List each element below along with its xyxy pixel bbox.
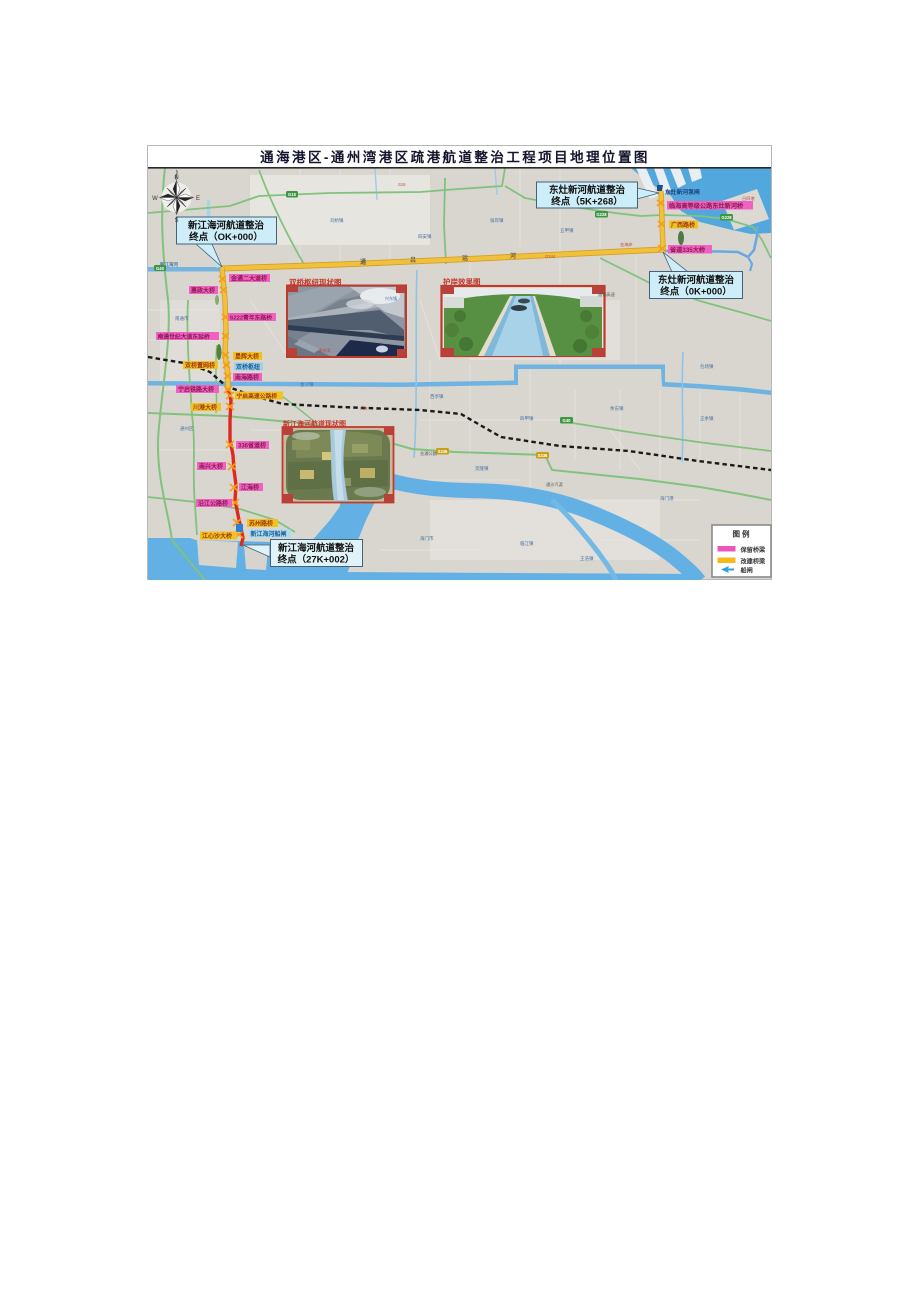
svg-text:S336: S336 bbox=[538, 453, 548, 458]
svg-text:终点（0K+000）: 终点（0K+000） bbox=[659, 286, 732, 298]
svg-text:吕: 吕 bbox=[410, 256, 416, 264]
svg-text:船闸: 船闸 bbox=[741, 567, 753, 575]
svg-text:东灶新河航道整治: 东灶新河航道整治 bbox=[549, 184, 626, 196]
svg-text:运: 运 bbox=[462, 254, 468, 262]
svg-text:南通市: 南通市 bbox=[175, 315, 189, 322]
svg-text:保留桥梁: 保留桥梁 bbox=[740, 546, 767, 554]
svg-text:王浩镇: 王浩镇 bbox=[580, 555, 594, 562]
svg-text:新江海河船闸: 新江海河船闸 bbox=[251, 530, 287, 538]
svg-text:河: 河 bbox=[510, 252, 516, 260]
svg-text:改建桥梁: 改建桥梁 bbox=[741, 557, 767, 565]
svg-text:S336: S336 bbox=[438, 449, 448, 454]
svg-text:W: W bbox=[152, 196, 158, 202]
svg-text:余东镇: 余东镇 bbox=[610, 405, 624, 412]
svg-text:G40: G40 bbox=[563, 418, 572, 423]
svg-text:广西路桥: 广西路桥 bbox=[671, 221, 696, 229]
svg-text:终点（27K+002）: 终点（27K+002） bbox=[277, 554, 355, 566]
svg-text:S222青年东路桥: S222青年东路桥 bbox=[230, 314, 273, 322]
svg-text:S28: S28 bbox=[360, 406, 368, 411]
svg-text:包场镇: 包场镇 bbox=[700, 363, 714, 370]
svg-text:S: S bbox=[174, 218, 178, 224]
svg-text:惠政大桥: 惠政大桥 bbox=[191, 287, 216, 295]
svg-text:苏州路桥: 苏州路桥 bbox=[249, 520, 274, 528]
svg-text:刘桥镇: 刘桥镇 bbox=[330, 217, 344, 224]
svg-text:南通世纪大道东延桥: 南通世纪大道东延桥 bbox=[158, 333, 210, 341]
svg-text:G15: G15 bbox=[288, 192, 297, 197]
svg-text:南海路桥: 南海路桥 bbox=[235, 374, 260, 382]
svg-text:西亭镇: 西亭镇 bbox=[430, 393, 444, 400]
svg-text:N: N bbox=[174, 175, 178, 181]
svg-text:金通二大道桥: 金通二大道桥 bbox=[230, 275, 268, 283]
svg-text:双桥枢纽现状图: 双桥枢纽现状图 bbox=[289, 277, 342, 287]
svg-text:垦辉大桥: 垦辉大桥 bbox=[235, 353, 260, 361]
svg-text:临江镇: 临江镇 bbox=[520, 540, 534, 547]
svg-text:336省道桥: 336省道桥 bbox=[238, 442, 267, 450]
svg-text:金海岸: 金海岸 bbox=[620, 241, 633, 248]
svg-text:南兴大桥: 南兴大桥 bbox=[199, 463, 224, 471]
svg-text:G228: G228 bbox=[721, 215, 732, 220]
svg-text:省道335大桥: 省道335大桥 bbox=[669, 246, 706, 254]
svg-text:终点（OK+000）: 终点（OK+000） bbox=[188, 231, 263, 243]
svg-text:正余镇: 正余镇 bbox=[700, 415, 714, 422]
svg-text:双桥枢纽: 双桥枢纽 bbox=[236, 363, 260, 371]
svg-text:吕四港: 吕四港 bbox=[742, 195, 755, 202]
svg-text:海门市: 海门市 bbox=[420, 535, 434, 542]
svg-text:通锡高速: 通锡高速 bbox=[598, 291, 616, 298]
svg-text:通: 通 bbox=[360, 258, 366, 266]
svg-text:江海桥: 江海桥 bbox=[241, 484, 260, 492]
svg-text:图 例: 图 例 bbox=[732, 529, 750, 539]
svg-text:E: E bbox=[196, 196, 200, 202]
svg-text:终点（5K+268）: 终点（5K+268） bbox=[550, 196, 623, 208]
svg-text:江心沙大桥: 江心沙大桥 bbox=[202, 532, 233, 540]
svg-text:通沙汽渡: 通沙汽渡 bbox=[546, 481, 564, 488]
svg-text:四安镇: 四安镇 bbox=[418, 233, 432, 240]
svg-text:金沙镇: 金沙镇 bbox=[300, 381, 314, 388]
svg-text:G228: G228 bbox=[596, 212, 607, 217]
svg-text:沿江公路桥: 沿江公路桥 bbox=[198, 500, 229, 508]
svg-text:骑岸镇: 骑岸镇 bbox=[490, 217, 504, 224]
svg-text:海门港: 海门港 bbox=[660, 495, 674, 502]
svg-text:兴东镇: 兴东镇 bbox=[385, 295, 397, 301]
svg-text:通州区: 通州区 bbox=[180, 425, 194, 432]
svg-text:临海高等级公路东灶新河桥: 临海高等级公路东灶新河桥 bbox=[669, 202, 744, 210]
svg-text:通州湾: 通州湾 bbox=[318, 347, 331, 354]
svg-text:东灶新河泵闸: 东灶新河泵闸 bbox=[665, 188, 700, 196]
svg-text:金通公路: 金通公路 bbox=[420, 450, 438, 457]
svg-text:S19: S19 bbox=[398, 182, 406, 187]
svg-text:川港大桥: 川港大桥 bbox=[192, 404, 218, 412]
svg-text:宁启铁路大桥: 宁启铁路大桥 bbox=[178, 386, 215, 394]
svg-text:货隆镇: 货隆镇 bbox=[475, 465, 489, 472]
svg-text:G344: G344 bbox=[545, 254, 556, 259]
svg-text:新江海河航道现状图: 新江海河航道现状图 bbox=[283, 419, 346, 428]
svg-text:通海港区-通州湾港区疏港航道整治工程项目地理位置图: 通海港区-通州湾港区疏港航道整治工程项目地理位置图 bbox=[260, 149, 650, 165]
svg-text:新江海河航道整治: 新江海河航道整治 bbox=[188, 220, 265, 232]
svg-text:双桥置网桥: 双桥置网桥 bbox=[185, 362, 216, 370]
svg-text:护岸效果图: 护岸效果图 bbox=[443, 277, 481, 287]
svg-text:四甲镇: 四甲镇 bbox=[520, 415, 534, 422]
svg-text:五甲镇: 五甲镇 bbox=[560, 227, 574, 234]
svg-text:宁启高速公路桥: 宁启高速公路桥 bbox=[237, 392, 278, 400]
svg-text:新江海河航道整治: 新江海河航道整治 bbox=[278, 542, 355, 554]
svg-text:东灶新河航道整治: 东灶新河航道整治 bbox=[658, 274, 735, 286]
svg-text:G40: G40 bbox=[156, 266, 165, 271]
